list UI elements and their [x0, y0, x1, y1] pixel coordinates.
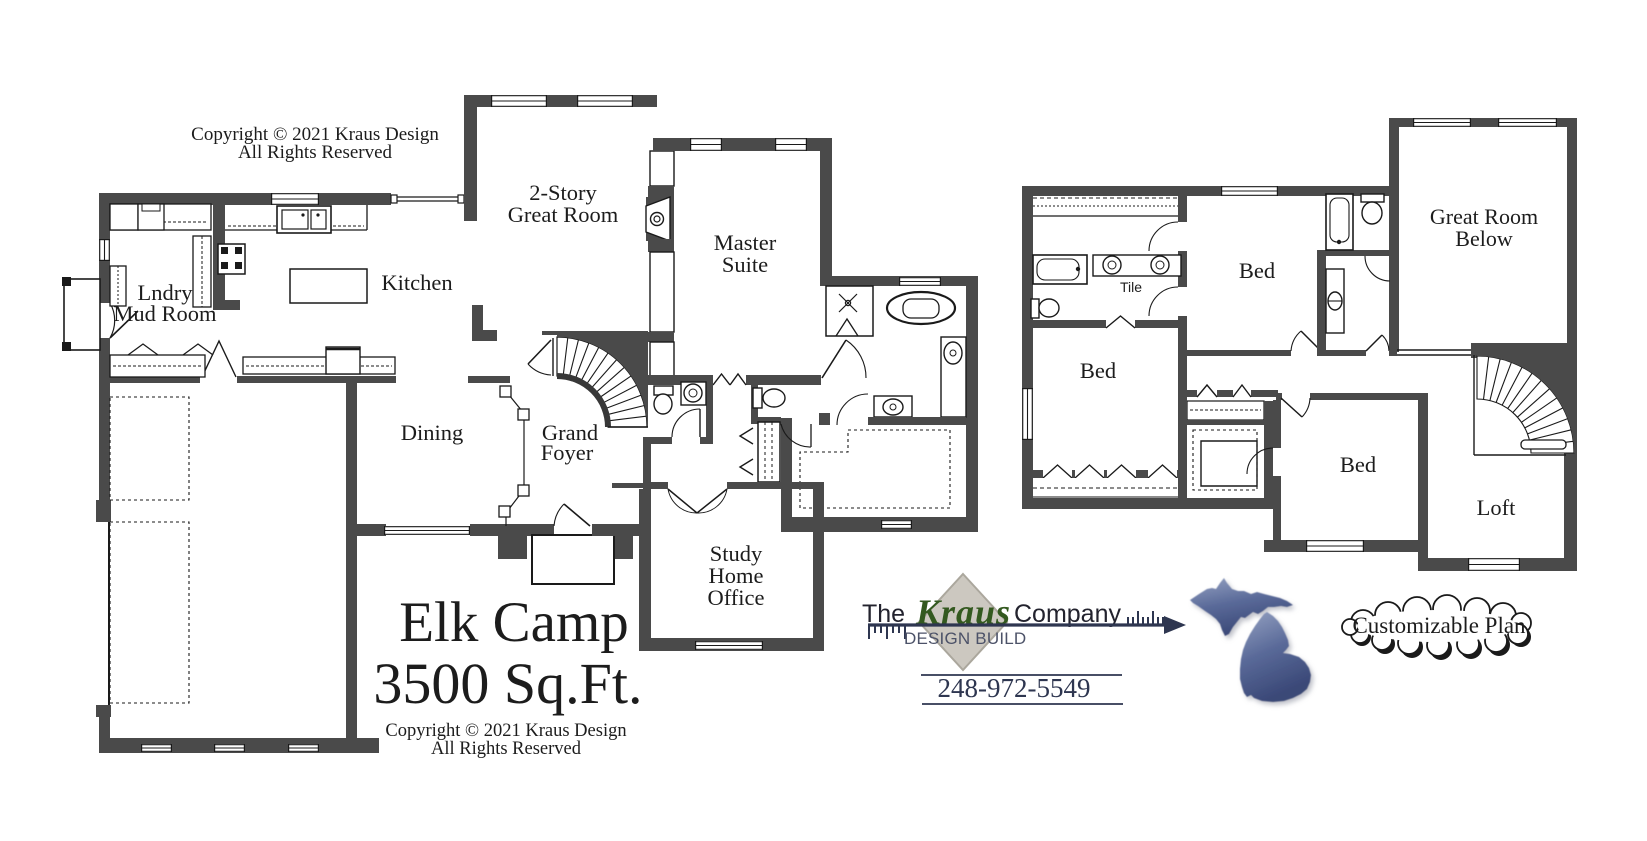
svg-text:Great Room: Great Room	[508, 202, 619, 227]
svg-text:DESIGN BUILD: DESIGN BUILD	[904, 629, 1026, 648]
svg-text:Tile: Tile	[1120, 279, 1142, 295]
svg-text:Customizable Plan: Customizable Plan	[1352, 613, 1526, 638]
svg-text:Copyright © 2021 Kraus Design: Copyright © 2021 Kraus Design	[385, 721, 626, 741]
svg-text:Bed: Bed	[1080, 358, 1116, 383]
svg-text:Suite: Suite	[722, 252, 768, 277]
svg-text:Bed: Bed	[1340, 452, 1376, 477]
svg-text:Foyer: Foyer	[541, 440, 594, 465]
svg-text:Loft: Loft	[1477, 495, 1516, 520]
svg-text:248-972-5549: 248-972-5549	[938, 673, 1091, 703]
svg-text:Below: Below	[1455, 226, 1513, 251]
svg-text:Mud Room: Mud Room	[113, 301, 217, 326]
svg-text:Dining: Dining	[401, 420, 464, 445]
svg-text:All Rights Reserved: All Rights Reserved	[238, 142, 393, 163]
svg-text:All Rights Reserved: All Rights Reserved	[431, 739, 582, 759]
svg-text:3500 Sq.Ft.: 3500 Sq.Ft.	[373, 651, 642, 716]
svg-text:Elk Camp: Elk Camp	[399, 591, 629, 654]
svg-text:Kitchen: Kitchen	[381, 270, 452, 295]
svg-text:Office: Office	[707, 585, 764, 610]
svg-text:Bed: Bed	[1239, 258, 1275, 283]
